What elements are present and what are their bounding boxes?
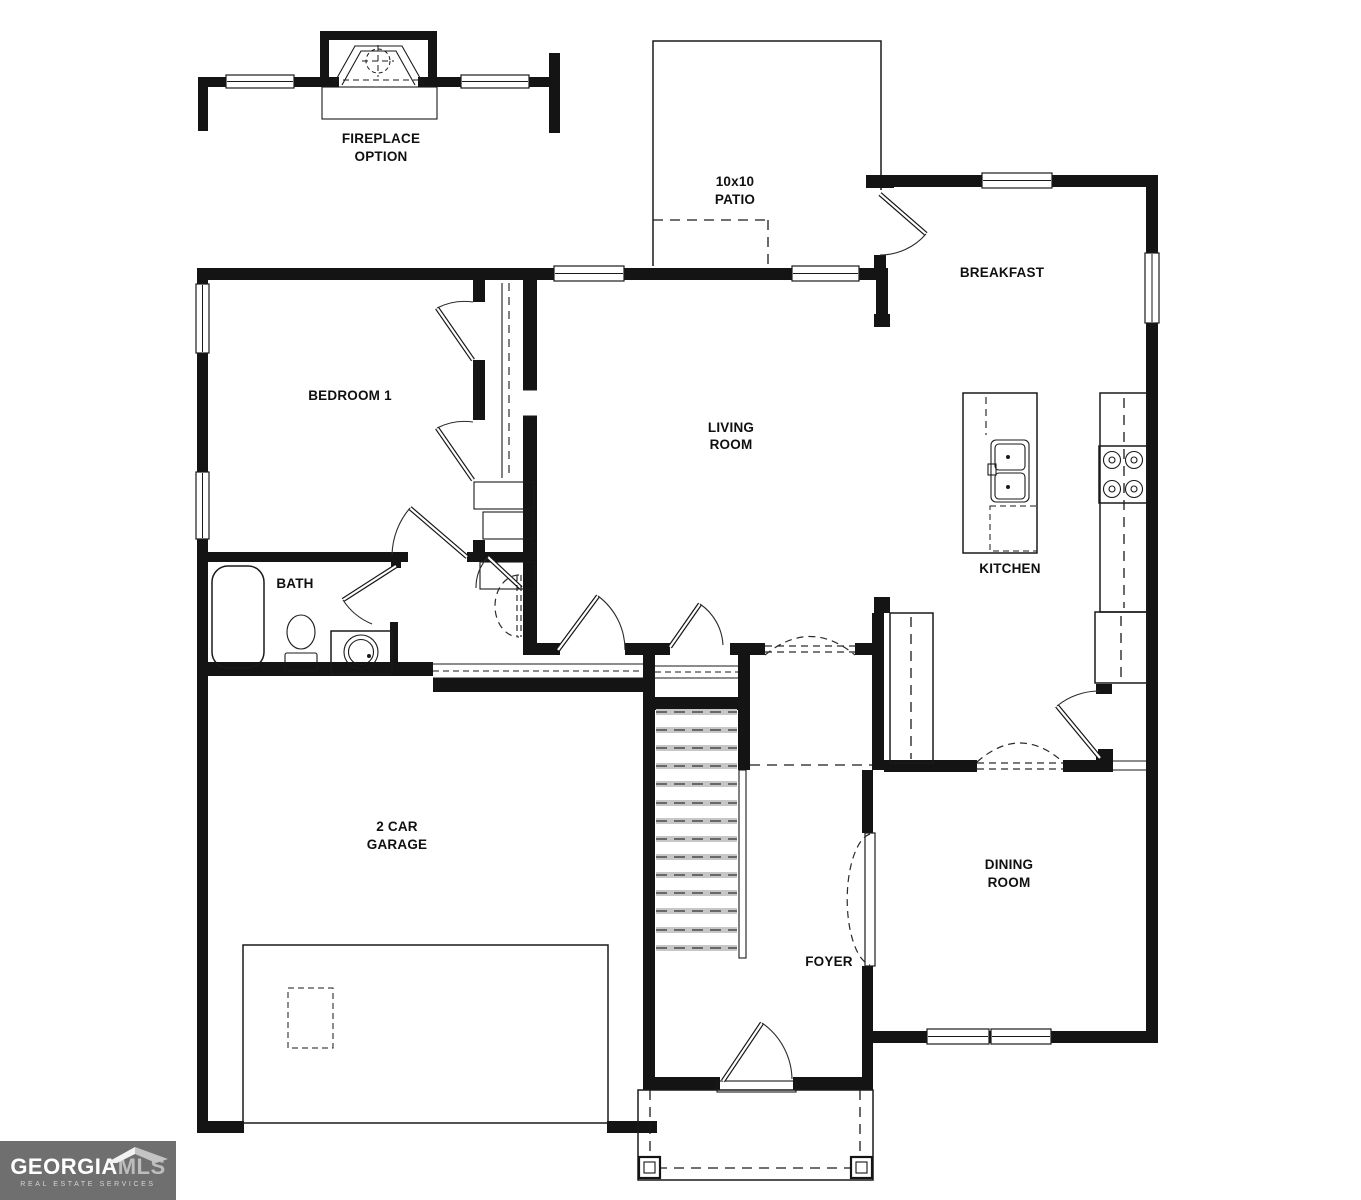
bath-label: BATH — [276, 576, 313, 591]
living-room: LIVING ROOM — [708, 420, 855, 655]
dining-room-label-line2: ROOM — [988, 875, 1031, 890]
closet-door-upper — [437, 301, 473, 360]
kitchen: KITCHEN — [890, 393, 1147, 766]
front-door — [717, 1023, 796, 1092]
bathroom: BATH — [212, 566, 396, 674]
refrigerator-icon — [1095, 612, 1147, 683]
floor-plan-drawing: FIREPLACE OPTION 10x10 PATIO — [0, 0, 1361, 1200]
closet-door-lower — [437, 421, 473, 480]
porch-post-right — [851, 1157, 872, 1178]
hall-doors — [433, 557, 738, 678]
breakfast-area: BREAKFAST — [880, 194, 1045, 280]
front-porch — [638, 1090, 873, 1180]
dining-room: DINING ROOM — [977, 743, 1063, 890]
bath-door — [343, 566, 396, 624]
stair-rail — [739, 770, 746, 958]
living-room-label-line2: ROOM — [710, 437, 753, 452]
fireplace-icon — [320, 31, 437, 119]
patio-door — [880, 194, 926, 255]
fireplace-option-label-line1: FIREPLACE — [342, 131, 420, 146]
living-foyer-cased-opening — [765, 637, 855, 656]
georgia-mls-logo: GEORGIAMLS REAL ESTATE SERVICES — [0, 1141, 176, 1200]
hall-to-living-door-right — [670, 604, 723, 647]
living-room-label-line1: LIVING — [708, 420, 754, 435]
garage-label-line2: GARAGE — [367, 837, 427, 852]
water-heater-icon — [288, 988, 333, 1048]
exterior-walls — [197, 175, 1158, 1133]
stairs — [656, 712, 872, 958]
hall-to-living-door-left — [558, 596, 625, 650]
range-icon — [1099, 446, 1147, 503]
double-sink-icon — [988, 440, 1029, 502]
foyer-label: FOYER — [805, 954, 853, 969]
logo-tagline: REAL ESTATE SERVICES — [20, 1181, 155, 1188]
hall-beam-lines — [433, 664, 738, 678]
floor-plan-page: { "page": { "background": "#ffffff" }, "… — [0, 0, 1361, 1200]
bedroom-1-label: BEDROOM 1 — [308, 388, 392, 403]
breakfast-label: BREAKFAST — [960, 265, 1045, 280]
garage-door-area — [243, 945, 608, 1123]
kitchen-cabinet — [890, 613, 933, 763]
roof-icon — [106, 1147, 168, 1163]
bathtub-icon — [212, 566, 264, 668]
garage-label-line1: 2 CAR — [376, 819, 418, 834]
dining-entry-door — [847, 833, 875, 966]
garage: 2 CAR GARAGE — [243, 819, 608, 1123]
patio: 10x10 PATIO — [653, 41, 881, 266]
kitchen-island — [963, 393, 1037, 553]
fireplace-option-label-line2: OPTION — [355, 149, 408, 164]
dining-room-label-line1: DINING — [985, 857, 1033, 872]
dining-cased-opening — [977, 743, 1063, 769]
bedroom-door — [392, 508, 467, 557]
kitchen-label: KITCHEN — [979, 561, 1040, 576]
patio-size-label: 10x10 — [716, 174, 755, 189]
logo-brand-text: GEORGIA — [10, 1154, 117, 1179]
dishwasher-icon — [990, 506, 1037, 551]
porch-post-left — [639, 1157, 660, 1178]
fireplace-option-detail: FIREPLACE OPTION — [198, 31, 560, 164]
bedroom-1: BEDROOM 1 — [308, 283, 535, 589]
patio-label: PATIO — [715, 192, 755, 207]
